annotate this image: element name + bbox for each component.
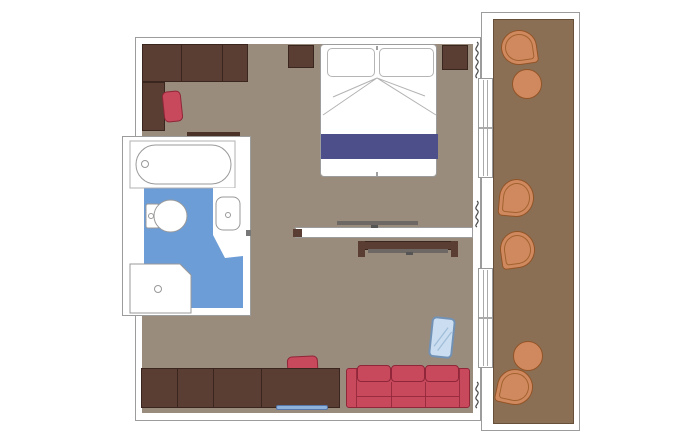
- sofa-cushion: [425, 365, 459, 382]
- bathtub-icon: [136, 145, 231, 184]
- partition-end-cap: [293, 229, 302, 237]
- mirror-glass-streaks: [430, 318, 454, 357]
- vanity-desk-icon: [142, 82, 165, 131]
- wardrobe-icon: [142, 44, 248, 82]
- cabin-floorplan: [0, 0, 700, 433]
- sink-drain: [226, 213, 231, 218]
- curtain-icon: [472, 41, 482, 79]
- tv-mount-icon: [406, 252, 413, 255]
- chair-seat-line: [498, 370, 531, 403]
- balcony-table-icon: [513, 341, 543, 371]
- cabinet-divider: [177, 369, 178, 407]
- curtain-icon: [472, 381, 482, 409]
- curtain-icon: [472, 200, 482, 228]
- sliding-door-icon: [478, 78, 493, 178]
- chair-seat-line: [502, 233, 533, 265]
- balcony-table-icon: [512, 69, 542, 99]
- sofa-cushion: [391, 365, 425, 382]
- cabinet-divider: [213, 369, 214, 407]
- double-bed-icon: [320, 44, 437, 177]
- cabinet-divider: [261, 369, 262, 407]
- standing-mirror-icon: [428, 316, 456, 359]
- shower-drain: [155, 286, 162, 293]
- toilet-flush: [149, 214, 154, 219]
- wardrobe-divider: [222, 45, 223, 81]
- sliding-door-icon: [478, 268, 493, 368]
- nightstand-left-icon: [288, 45, 314, 68]
- toilet-icon: [154, 200, 187, 232]
- sofa-armrest-line: [459, 368, 460, 408]
- sofa-seat-line: [391, 382, 392, 408]
- wardrobe-divider: [181, 45, 182, 81]
- desk-chair-icon: [161, 90, 183, 123]
- partition-wall: [295, 227, 473, 238]
- tv-mount-icon: [371, 225, 378, 228]
- desk-leg: [451, 241, 458, 257]
- bed-runner: [321, 134, 438, 159]
- chair-seat-line: [502, 182, 532, 214]
- chair-seat-line: [503, 32, 534, 63]
- sofa-seat-line: [425, 382, 426, 408]
- nightstand-right-icon: [442, 45, 468, 70]
- desk-leg: [358, 241, 365, 257]
- sofa-cushion: [357, 365, 391, 382]
- door-handle-icon: [246, 230, 251, 236]
- bathtub-drain: [142, 161, 149, 168]
- doormat-icon: [276, 405, 328, 410]
- sideboard-desk-icon: [141, 368, 340, 408]
- bathroom: [122, 136, 252, 316]
- sofa-seat-line: [357, 396, 459, 397]
- sofa-icon: [346, 365, 470, 408]
